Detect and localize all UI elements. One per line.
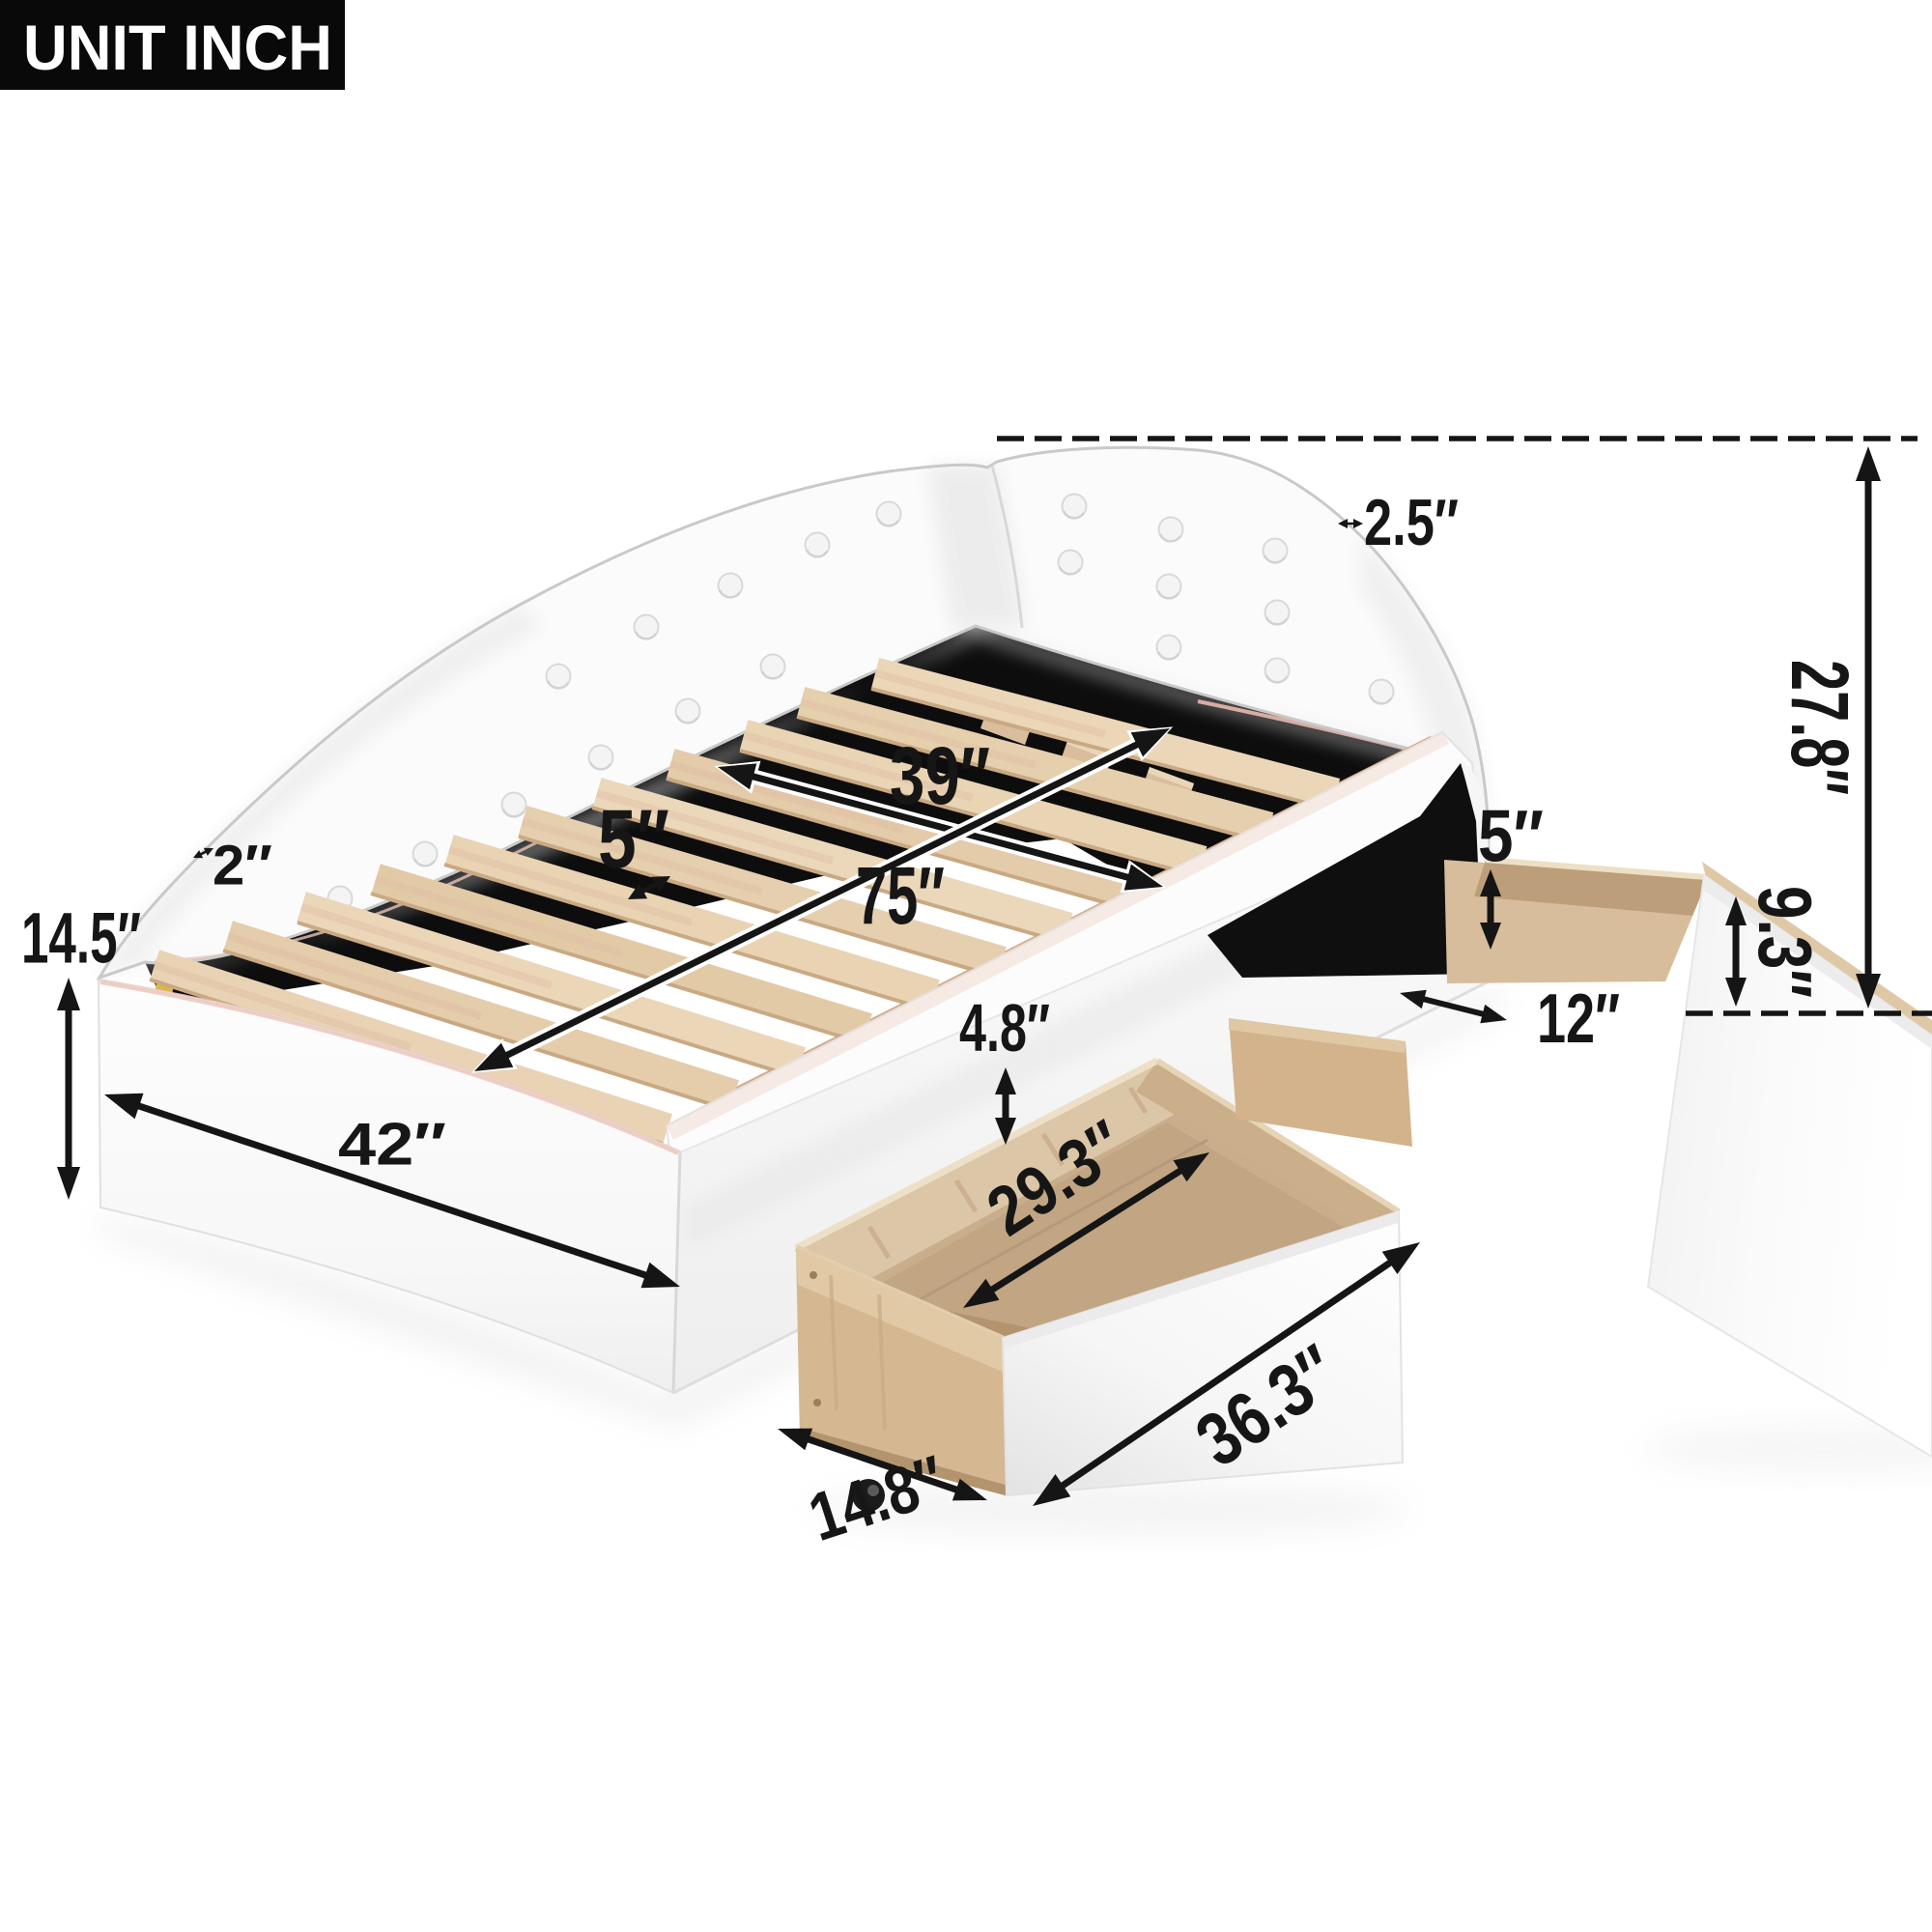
svg-text:42″: 42″ bbox=[338, 1112, 446, 1179]
svg-text:39″: 39″ bbox=[890, 730, 990, 821]
svg-text:75″: 75″ bbox=[856, 850, 945, 941]
svg-text:12″: 12″ bbox=[1537, 980, 1620, 1058]
svg-text:2.5″: 2.5″ bbox=[1364, 486, 1459, 559]
svg-text:5″: 5″ bbox=[1478, 796, 1544, 878]
svg-text:14.5″: 14.5″ bbox=[21, 898, 141, 979]
svg-text:9.3″: 9.3″ bbox=[1743, 886, 1828, 998]
svg-text:27.8″: 27.8″ bbox=[1775, 660, 1865, 795]
svg-text:5″: 5″ bbox=[598, 793, 669, 886]
svg-text:UNIT INCH: UNIT INCH bbox=[23, 12, 332, 83]
svg-text:2″: 2″ bbox=[213, 835, 272, 897]
svg-text:4.8″: 4.8″ bbox=[959, 990, 1050, 1065]
